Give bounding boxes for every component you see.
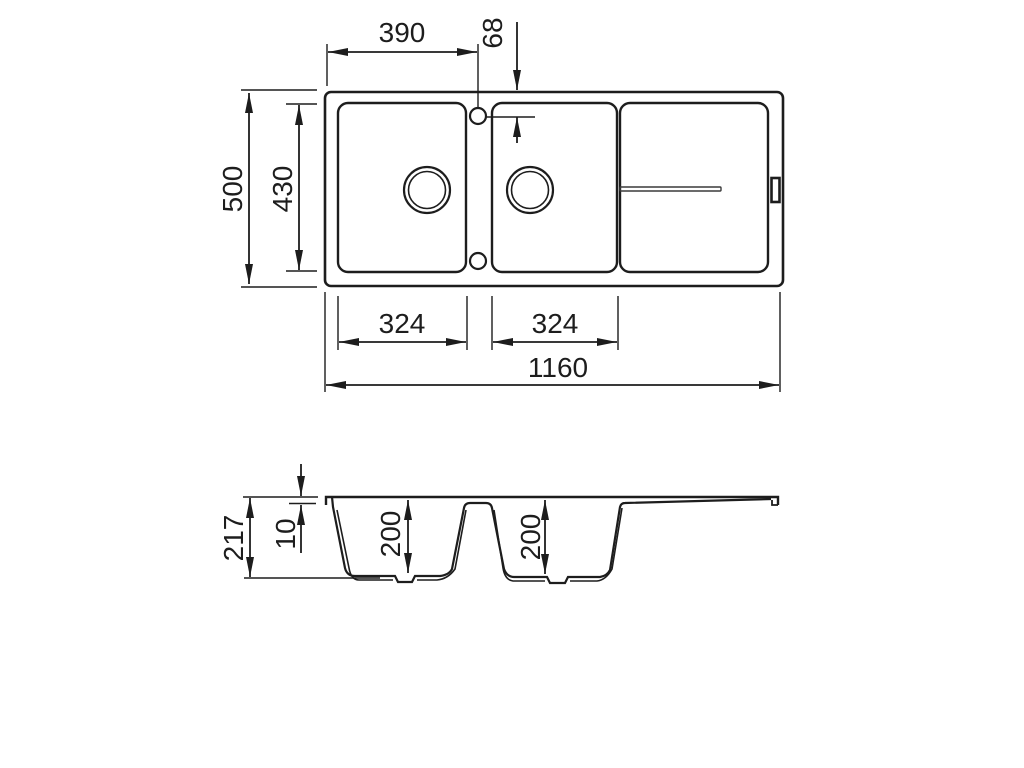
dim-label-500: 500 [217,166,248,213]
dim-label-10: 10 [270,518,301,549]
dim-430: 430 [267,104,317,271]
dim-324-bowl1: 324 [338,296,467,350]
dim-label-390: 390 [379,17,426,48]
dim-label-430: 430 [267,166,298,213]
dim-68: 68 [477,17,535,143]
tap-hole-top [470,108,486,124]
dim-label-68: 68 [477,17,508,48]
dim-217: 217 [218,497,318,577]
drainer-groove [620,187,721,191]
drawing-sheet: 390 68 500 430 324 [0,0,1024,768]
section-view: 217 10 200 200 [218,464,778,583]
dim-label-324-bowl1: 324 [379,308,426,339]
dim-10: 10 [270,464,316,553]
dim-label-200-bowl2: 200 [515,514,546,561]
rim-badge [772,178,780,202]
center-drain-outer-circle [507,167,553,213]
left-bowl-outline [338,103,466,272]
dim-200-bowl2: 200 [515,500,546,574]
center-bowl-outline [492,103,617,272]
dim-label-217: 217 [218,515,249,562]
sink-technical-drawing: 390 68 500 430 324 [0,0,1024,768]
center-drain-inner-circle [512,172,549,209]
left-drain-outer-circle [404,167,450,213]
top-view: 390 68 500 430 324 [217,17,783,392]
dim-label-200-bowl1: 200 [375,511,406,558]
dim-label-1160: 1160 [528,352,588,383]
dim-390: 390 [327,17,478,108]
bowl2-shell-thickness [494,508,622,581]
tap-hole-bottom [470,253,486,269]
dim-label-324-bowl2: 324 [532,308,579,339]
dim-200-bowl1: 200 [375,500,408,573]
left-drain-inner-circle [409,172,446,209]
dim-324-bowl2: 324 [492,296,618,350]
